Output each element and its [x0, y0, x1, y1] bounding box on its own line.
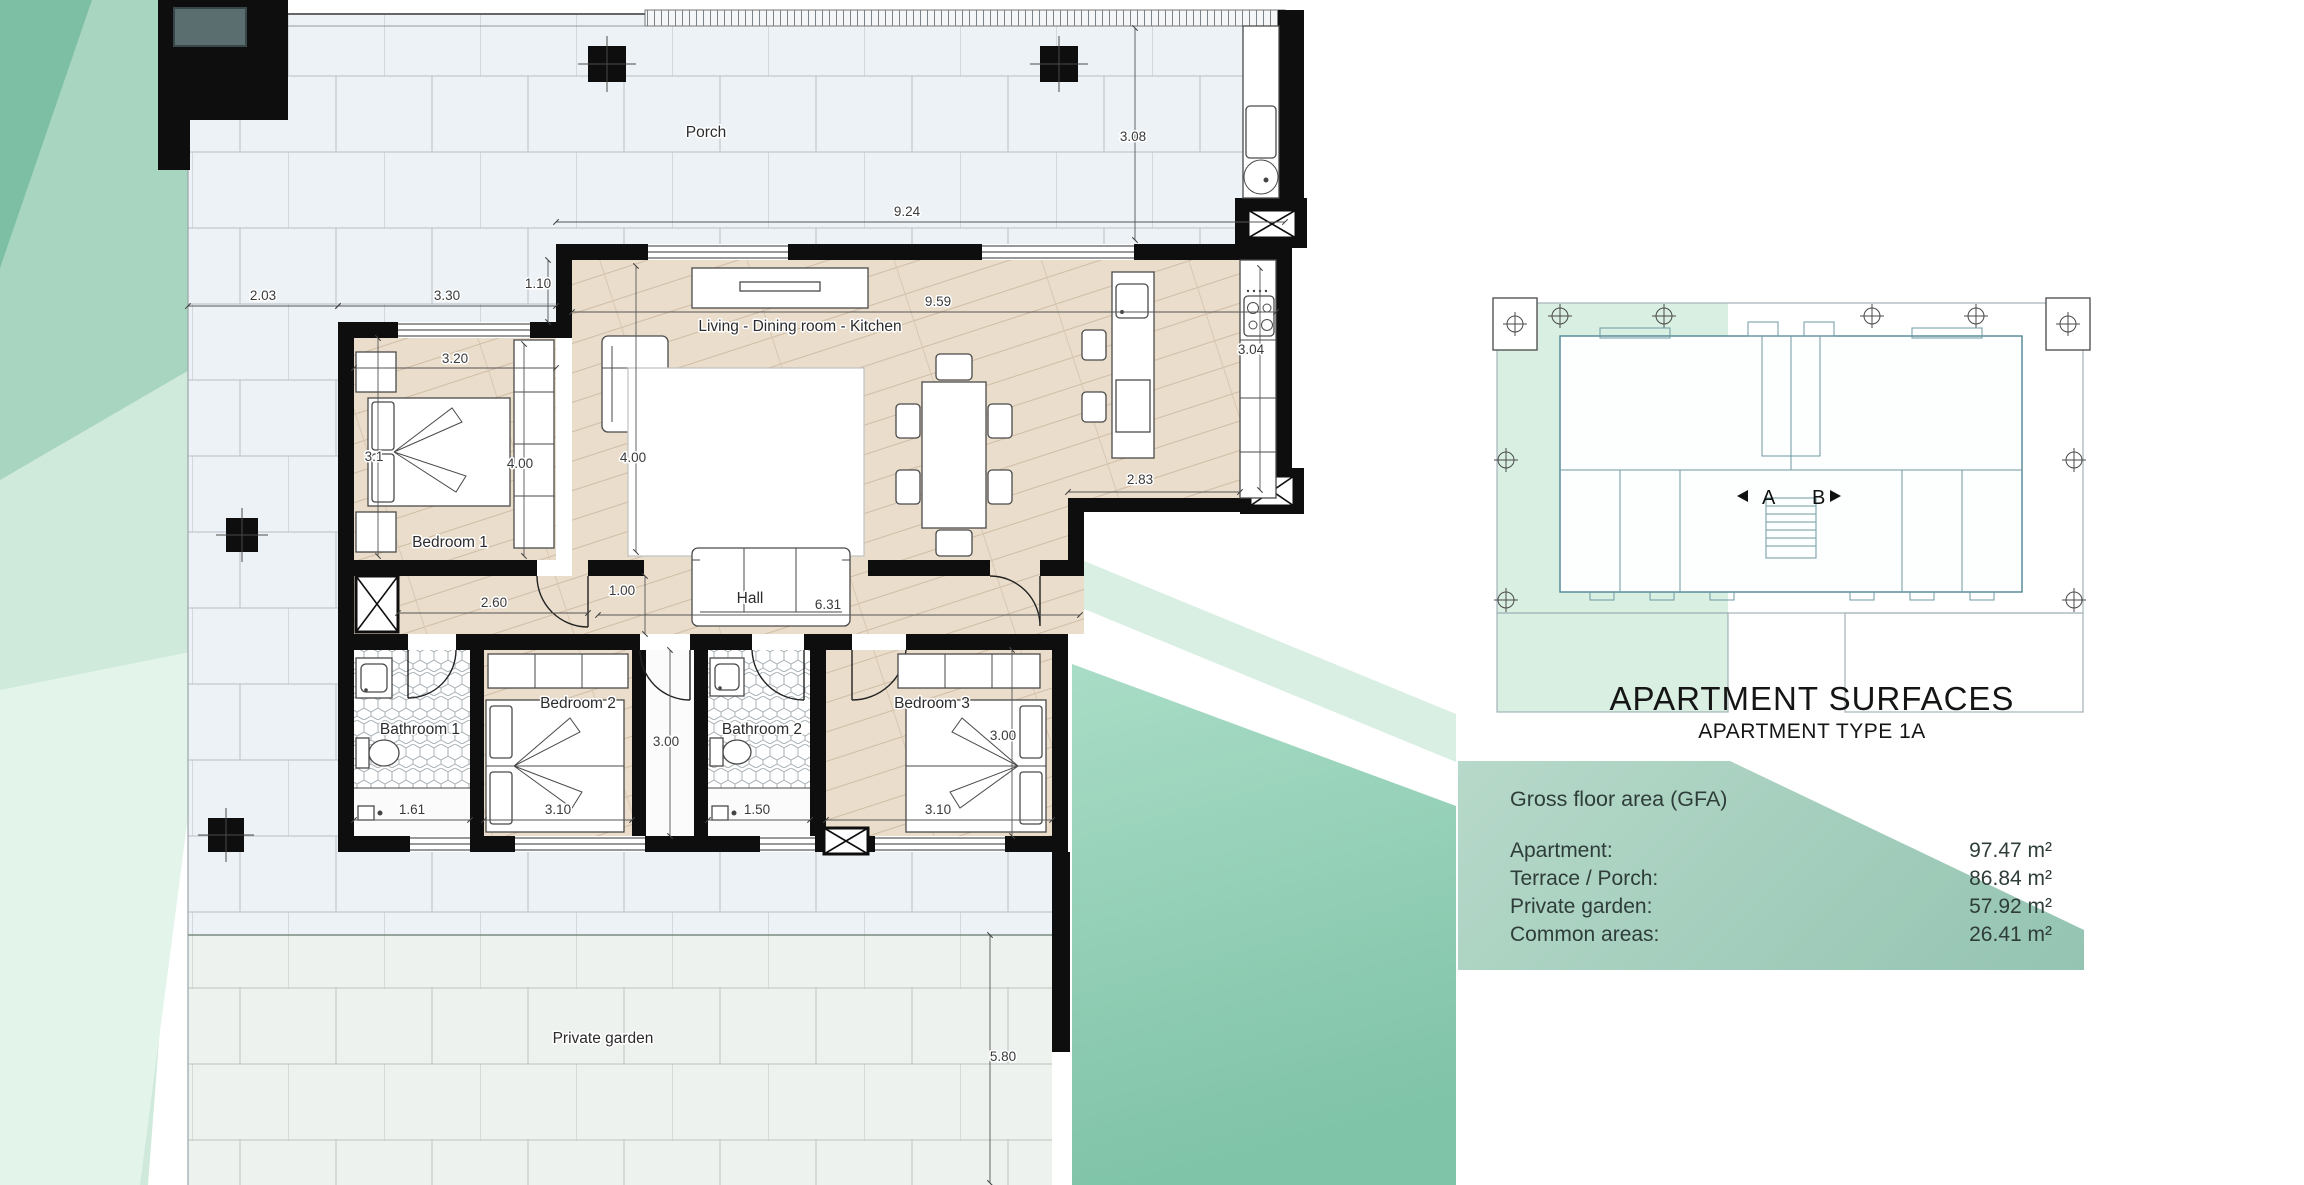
dimension-label-2: 1.10 — [525, 276, 551, 291]
entry-pillar — [174, 8, 246, 46]
room-label-living-dining-kitchen: Living - Dining room - Kitchen — [698, 318, 901, 335]
bed-bedroom1 — [368, 398, 510, 506]
site-building — [1560, 322, 2022, 600]
surfaces-rows: Apartment:97.47 m²Terrace / Porch:86.84 … — [1510, 837, 2052, 949]
dimension-label-19: 3.10 — [925, 802, 951, 817]
dimension-label-10: 3.1 — [365, 449, 384, 464]
dimension-label-18: 1.50 — [744, 802, 770, 817]
dimension-label-15: 3.00 — [653, 734, 679, 749]
nightstand — [356, 352, 396, 392]
dimension-label-5: 9.59 — [925, 294, 951, 309]
sheet-title: APARTMENT SURFACES — [1482, 682, 2142, 717]
surface-row: Common areas:26.41 m² — [1510, 921, 2052, 949]
site-plan: A B — [1493, 298, 2090, 712]
dimension-label-13: 1.00 — [609, 583, 635, 598]
dimension-label-20: 3.00 — [990, 728, 1016, 743]
rug — [628, 368, 864, 556]
surface-row-label: Private garden: — [1510, 893, 1652, 921]
dimension-label-0: 2.03 — [250, 288, 276, 303]
surface-row-label: Common areas: — [1510, 921, 1659, 949]
sink-bathroom1 — [356, 658, 392, 698]
surface-row: Terrace / Porch:86.84 m² — [1510, 865, 2052, 893]
nightstand — [356, 512, 396, 552]
dimension-label-4: 3.08 — [1120, 129, 1146, 144]
room-label-bedroom-1: Bedroom 1 — [412, 534, 488, 551]
room-label-bathroom-2: Bathroom 2 — [722, 721, 802, 738]
kitchen-counter — [1240, 260, 1276, 498]
dimension-label-6: 3.04 — [1238, 342, 1265, 357]
dimension-label-7: 2.83 — [1127, 472, 1153, 487]
surface-row-value: 26.41 m² — [1969, 921, 2052, 949]
dimension-label-16: 1.61 — [399, 802, 425, 817]
wardrobe-bedroom2 — [488, 654, 628, 688]
sink-bathroom2 — [710, 658, 744, 696]
dimension-label-8: 4.00 — [620, 450, 646, 465]
sofa — [692, 548, 850, 626]
surface-row: Private garden:57.92 m² — [1510, 893, 2052, 921]
dimension-label-21: 5.80 — [990, 1049, 1016, 1064]
surface-row-label: Apartment: — [1510, 837, 1613, 865]
surfaces-panel: Gross floor area (GFA) Apartment:97.47 m… — [1458, 761, 2084, 970]
floor-plan-svg: 2.033.301.109.243.089.593.042.834.003.20… — [0, 0, 2304, 1185]
dimension-label-9: 3.20 — [442, 351, 468, 366]
pergola-hatch-strip — [645, 10, 1285, 26]
dimension-label-17: 3.10 — [545, 802, 571, 817]
toilet-bathroom1 — [356, 738, 399, 768]
porch-counter — [1243, 26, 1279, 198]
room-label-bedroom-3: Bedroom 3 — [894, 695, 970, 712]
room-label-bedroom-2: Bedroom 2 — [540, 695, 616, 712]
wardrobe-bedroom3 — [898, 654, 1040, 688]
dimension-label-12: 2.60 — [481, 595, 507, 610]
toilet-bathroom2 — [710, 738, 751, 766]
corner-marker — [2046, 298, 2090, 350]
surface-row: Apartment:97.47 m² — [1510, 837, 2052, 865]
room-label-private-garden: Private garden — [553, 1030, 654, 1047]
unit-a-label: A — [1762, 487, 1776, 509]
dimension-label-14: 6.31 — [815, 597, 841, 612]
sheet-subtitle: APARTMENT TYPE 1A — [1482, 720, 2142, 744]
room-label-porch: Porch — [686, 124, 727, 141]
unit-b-label: B — [1812, 487, 1825, 509]
floorplan-sheet: 2.033.301.109.243.089.593.042.834.003.20… — [0, 0, 2304, 1185]
surface-row-label: Terrace / Porch: — [1510, 865, 1658, 893]
tv-console — [692, 268, 868, 308]
surface-row-value: 57.92 m² — [1969, 893, 2052, 921]
room-label-hall: Hall — [737, 590, 764, 607]
title-block: APARTMENT SURFACES APARTMENT TYPE 1A — [1482, 682, 2142, 744]
rear-terrace-floor — [338, 852, 1052, 935]
wardrobe-bedroom1 — [514, 340, 554, 548]
dimension-label-3: 9.24 — [894, 204, 921, 219]
corner-marker — [1493, 298, 1537, 350]
garden-floor — [188, 935, 1052, 1185]
dimension-label-11: 4.00 — [507, 456, 533, 471]
gfa-header: Gross floor area (GFA) — [1510, 787, 1727, 812]
surface-row-value: 97.47 m² — [1969, 837, 2052, 865]
dimension-label-1: 3.30 — [434, 288, 460, 303]
surface-row-value: 86.84 m² — [1969, 865, 2052, 893]
room-label-bathroom-1: Bathroom 1 — [380, 721, 460, 738]
